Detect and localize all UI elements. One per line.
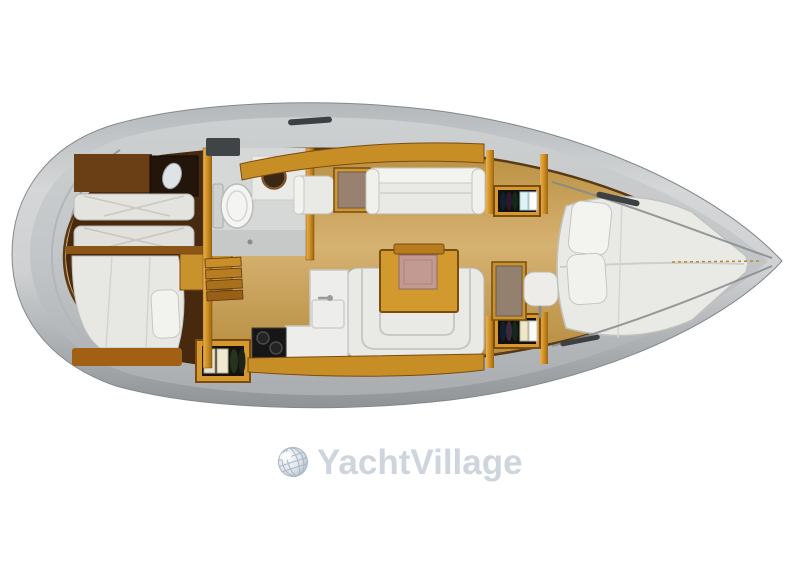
bulkhead-fwd-port-bottom xyxy=(486,316,494,368)
stove-burner xyxy=(270,342,282,354)
yacht-floorplan-image: YachtVillage xyxy=(0,0,800,565)
berth-pillow xyxy=(151,289,180,338)
aft-port-cabin xyxy=(74,154,198,252)
twin-berth-upper xyxy=(74,194,194,220)
watermark-text: YachtVillage xyxy=(317,445,523,480)
settee-backrest xyxy=(368,168,484,183)
box-item xyxy=(520,192,528,210)
galley-lower-lockers xyxy=(248,354,484,376)
shower-drain xyxy=(248,240,253,245)
watermark: YachtVillage xyxy=(274,441,523,483)
stove-burner xyxy=(257,332,269,344)
bottle xyxy=(512,192,518,210)
berth-foot-locker xyxy=(72,348,182,366)
bottle xyxy=(500,321,506,341)
settee-armrest xyxy=(366,169,379,214)
bottle xyxy=(506,321,512,341)
globe-icon xyxy=(274,443,312,481)
v-berth-pillow xyxy=(566,253,607,306)
bottle xyxy=(230,349,238,373)
salon-table-lip xyxy=(394,244,444,254)
settee-armrest xyxy=(472,169,485,214)
bulkhead-fwd-stbd-top xyxy=(540,154,548,214)
deck-hatch xyxy=(206,138,240,156)
salon-settee xyxy=(366,168,485,214)
v-berth-pillow xyxy=(567,200,612,256)
bottle xyxy=(500,192,506,210)
bottle xyxy=(512,321,518,341)
box-item xyxy=(529,321,537,341)
vanity-panel xyxy=(496,266,522,316)
chart-table-top xyxy=(338,172,366,208)
stove xyxy=(252,328,286,358)
aft-port-shelf xyxy=(74,154,152,192)
aft-cabin-divider xyxy=(66,246,206,254)
bottle xyxy=(239,349,246,373)
chart-seat-back xyxy=(294,176,304,214)
fwd-top-locker xyxy=(494,186,540,216)
bottle xyxy=(506,192,512,210)
bulkhead-fwd-stbd-bottom xyxy=(540,312,548,364)
box-item xyxy=(529,192,537,210)
head-floor-shadow xyxy=(212,230,306,256)
stool xyxy=(524,272,558,306)
carton-item xyxy=(217,349,228,373)
bulkhead-fwd-port-top xyxy=(486,150,494,214)
bulkhead-aft xyxy=(203,148,212,368)
box-item xyxy=(520,321,528,341)
